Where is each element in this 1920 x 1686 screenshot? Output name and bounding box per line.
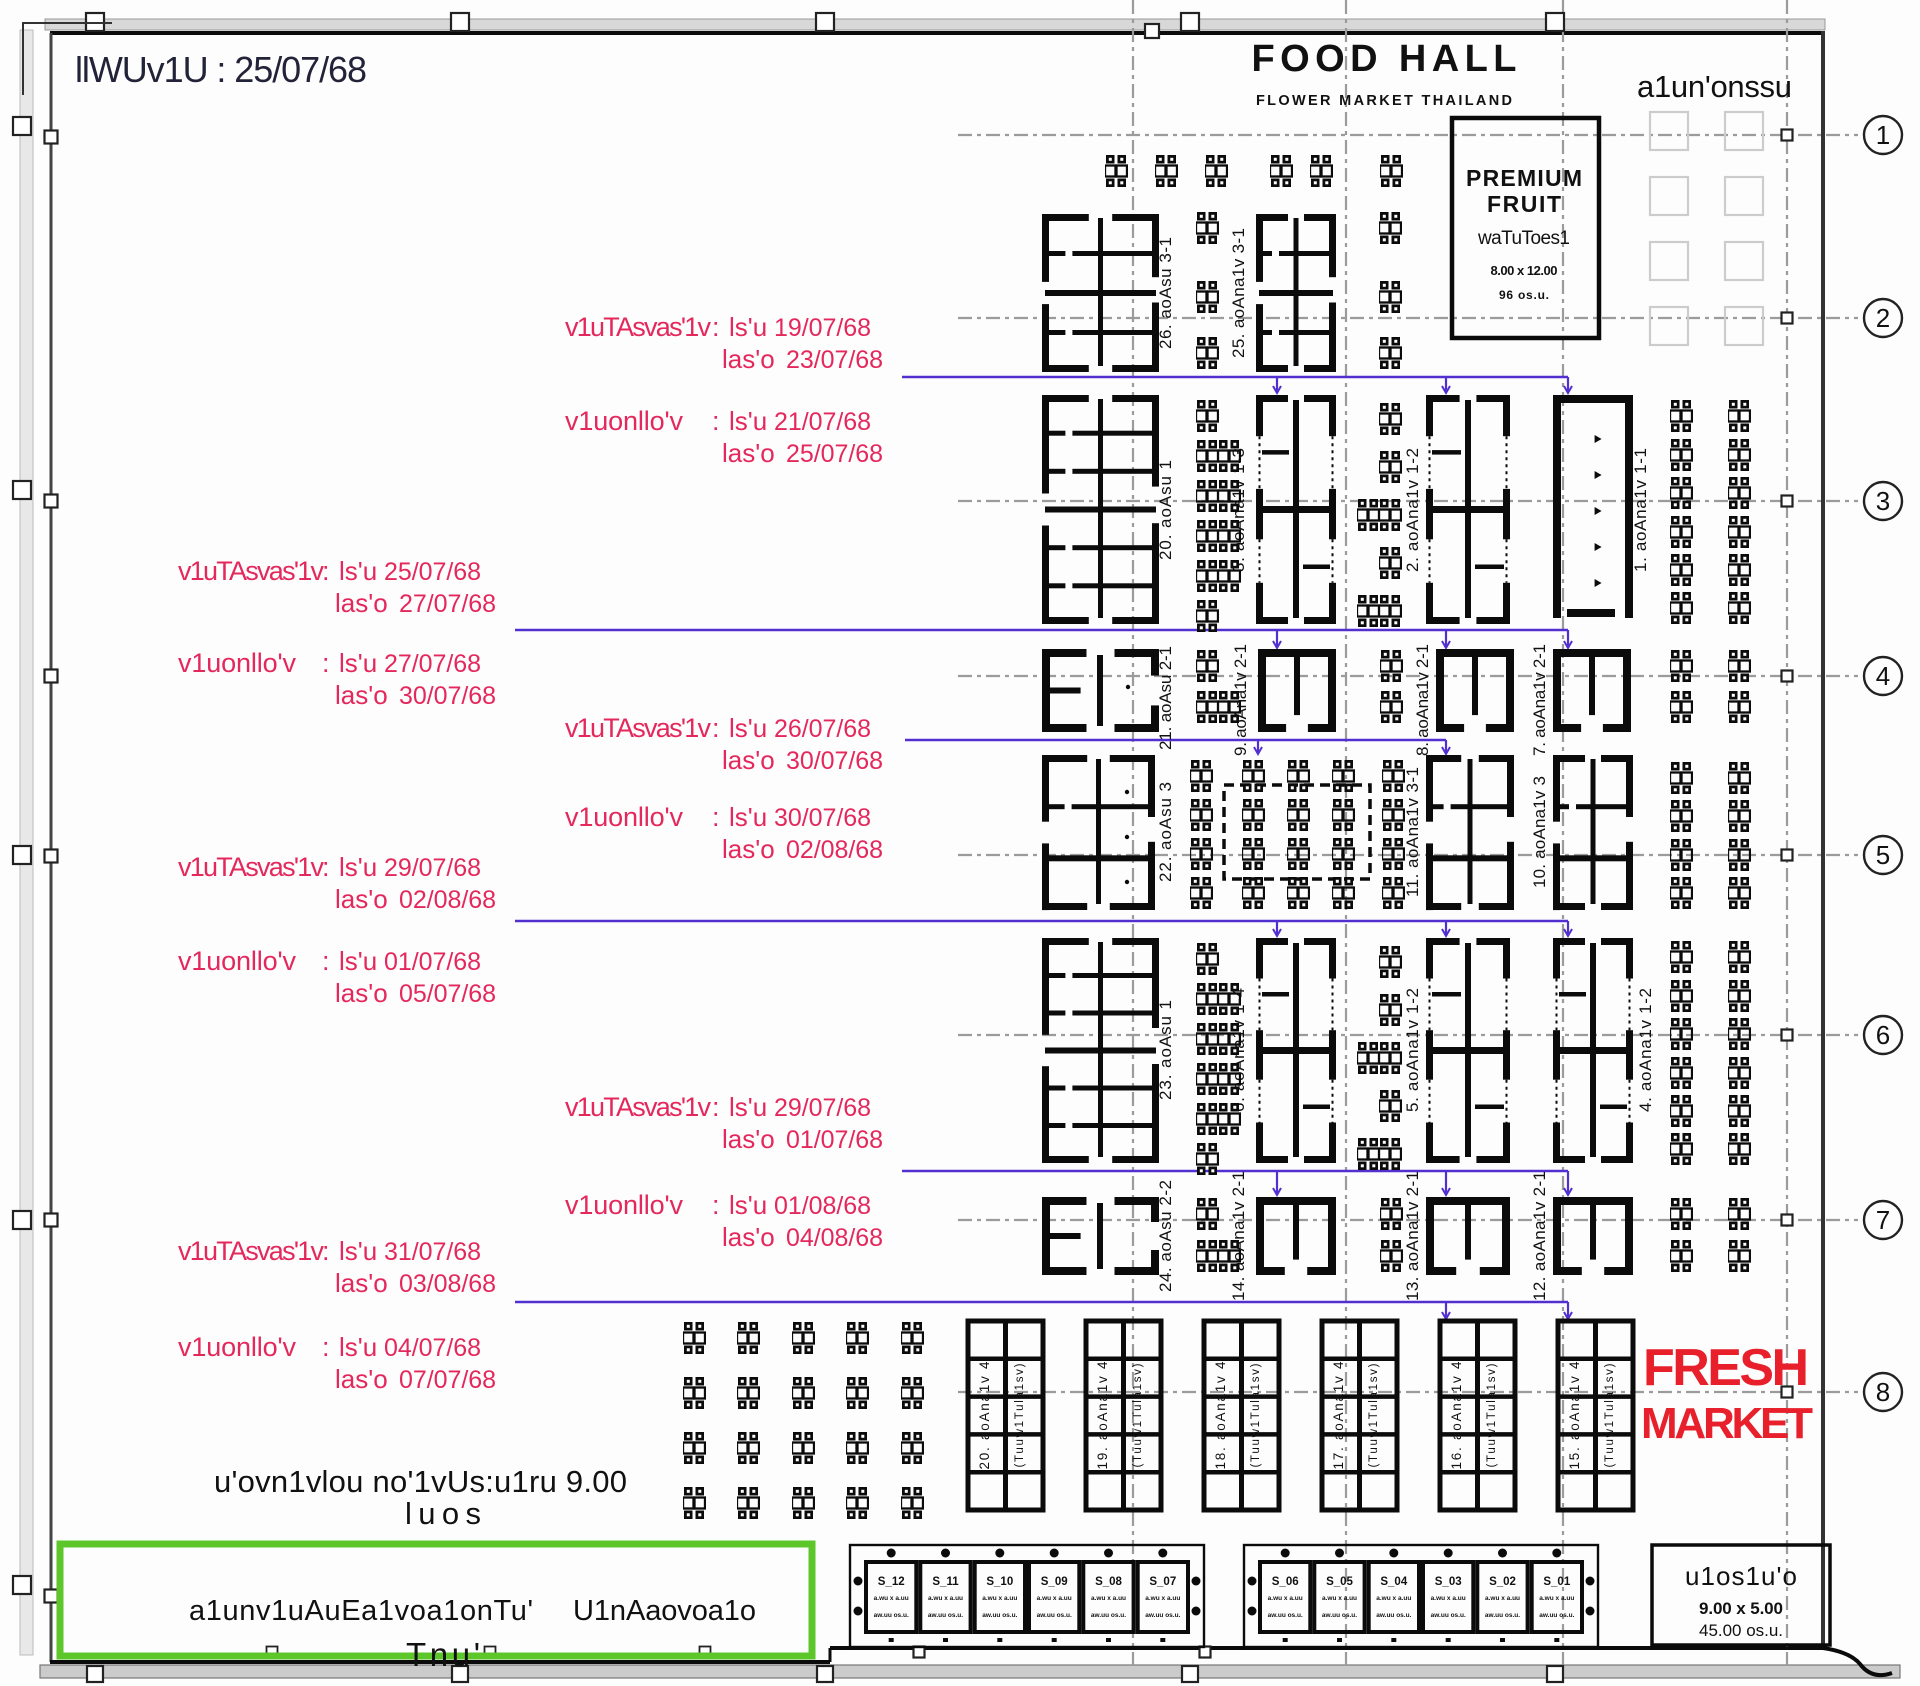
svg-text:2. aoAna1v 1-2: 2. aoAna1v 1-2: [1403, 448, 1422, 572]
svg-text:las'o: las'o: [722, 438, 775, 468]
svg-text::: :: [322, 556, 330, 586]
svg-text:(Tuuw1Tula1sv): (Tuuw1Tula1sv): [1604, 1363, 1616, 1467]
svg-text:S_08: S_08: [1095, 1576, 1122, 1588]
svg-text:15. aoAna1v 4: 15. aoAna1v 4: [1567, 1361, 1582, 1469]
svg-text:llWUv1U : 25/07/68: llWUv1U : 25/07/68: [75, 49, 367, 90]
svg-text:v1uTAsvas'1v: v1uTAsvas'1v: [178, 556, 325, 586]
svg-text:S_11: S_11: [932, 1576, 959, 1588]
svg-text:MARKET: MARKET: [1641, 1399, 1813, 1448]
svg-text:ls'u: ls'u: [339, 852, 377, 882]
svg-text:30/07/68: 30/07/68: [786, 747, 883, 775]
svg-text:v1uTAsvas'1v: v1uTAsvas'1v: [565, 713, 712, 743]
svg-text:v1uonllo'v: v1uonllo'v: [178, 946, 297, 976]
svg-text::: :: [712, 312, 720, 342]
svg-text:las'o: las'o: [335, 1364, 388, 1394]
svg-text:11. aoAna1v 3-1: 11. aoAna1v 3-1: [1403, 767, 1422, 897]
svg-text:waTuToes1: waTuToes1: [1477, 228, 1570, 249]
svg-text:8. aoAna1v 2-1: 8. aoAna1v 2-1: [1413, 644, 1432, 756]
svg-text:a.wu x a.uu: a.wu x a.uu: [1268, 1595, 1303, 1602]
svg-text:PREMIUM: PREMIUM: [1466, 165, 1582, 191]
svg-text:las'o: las'o: [722, 1124, 775, 1154]
svg-text:a1unv1uAuEa1voa1onTu': a1unv1uAuEa1voa1onTu': [189, 1595, 533, 1627]
svg-text:ls'u: ls'u: [729, 312, 767, 342]
svg-text:04/08/68: 04/08/68: [786, 1224, 883, 1252]
svg-text:01/07/68: 01/07/68: [786, 1126, 883, 1154]
svg-text:20. aoAsu 1: 20. aoAsu 1: [1156, 460, 1175, 560]
svg-text:aw.uu os.u.: aw.uu os.u.: [928, 1612, 963, 1619]
svg-text:a.wu x a.uu: a.wu x a.uu: [874, 1595, 909, 1602]
svg-text:19/07/68: 19/07/68: [774, 314, 871, 342]
svg-text:aw.uu os.u.: aw.uu os.u.: [1268, 1612, 1303, 1619]
svg-text:a.wu x a.uu: a.wu x a.uu: [1091, 1595, 1126, 1602]
svg-text:10. aoAna1v 3: 10. aoAna1v 3: [1530, 776, 1549, 888]
svg-text:a.wu x a.uu: a.wu x a.uu: [1539, 1595, 1574, 1602]
svg-text:a.wu x a.uu: a.wu x a.uu: [1485, 1595, 1520, 1602]
svg-text:8.00 x 12.00: 8.00 x 12.00: [1491, 263, 1558, 278]
svg-text:ls'u: ls'u: [339, 1332, 377, 1362]
svg-text:29/07/68: 29/07/68: [774, 1094, 871, 1122]
svg-text:S_12: S_12: [878, 1576, 905, 1588]
svg-text::: :: [712, 1092, 720, 1122]
svg-text:a.wu x a.uu: a.wu x a.uu: [1431, 1595, 1466, 1602]
svg-text:S_10: S_10: [986, 1576, 1013, 1588]
svg-text:ls'u: ls'u: [729, 1092, 767, 1122]
svg-text:Tnu': Tnu': [406, 1636, 480, 1673]
svg-text:las'o: las'o: [335, 978, 388, 1008]
svg-text:1: 1: [1876, 120, 1890, 150]
svg-text:v1uonllo'v: v1uonllo'v: [178, 648, 297, 678]
svg-text:las'o: las'o: [722, 344, 775, 374]
svg-text:02/08/68: 02/08/68: [786, 836, 883, 864]
svg-text:aw.uu os.u.: aw.uu os.u.: [982, 1612, 1017, 1619]
svg-text:las'o: las'o: [335, 1268, 388, 1298]
svg-text:FRESH: FRESH: [1643, 1339, 1809, 1397]
svg-text:26/07/68: 26/07/68: [774, 715, 871, 743]
svg-text:aw.uu os.u.: aw.uu os.u.: [1037, 1612, 1072, 1619]
svg-text:25/07/68: 25/07/68: [786, 440, 883, 468]
svg-text::: :: [322, 1236, 330, 1266]
svg-text:2: 2: [1876, 303, 1890, 333]
svg-text:26. aoAsu 3-1: 26. aoAsu 3-1: [1156, 237, 1175, 349]
svg-text:(Tuuw1Tula1sv): (Tuuw1Tula1sv): [1250, 1363, 1262, 1467]
svg-text:30/07/68: 30/07/68: [399, 682, 496, 710]
svg-text:31/07/68: 31/07/68: [384, 1238, 481, 1266]
svg-text:22. aoAsu 3: 22. aoAsu 3: [1156, 782, 1175, 882]
svg-text:03/08/68: 03/08/68: [399, 1270, 496, 1298]
svg-text:a1un'onssu: a1un'onssu: [1637, 69, 1792, 104]
svg-text:FRUIT: FRUIT: [1487, 191, 1561, 217]
svg-text:las'o: las'o: [335, 588, 388, 618]
svg-text::: :: [322, 946, 330, 976]
svg-text:45.00 os.u.: 45.00 os.u.: [1699, 1621, 1783, 1640]
svg-text:ls'u: ls'u: [339, 946, 377, 976]
svg-text:las'o: las'o: [722, 745, 775, 775]
svg-text:9.00 x 5.00: 9.00 x 5.00: [1699, 1599, 1783, 1618]
svg-text:a.wu x a.uu: a.wu x a.uu: [1037, 1595, 1072, 1602]
svg-text:S_04: S_04: [1380, 1576, 1407, 1588]
svg-text:S_02: S_02: [1489, 1576, 1516, 1588]
svg-text::: :: [712, 1190, 720, 1220]
svg-text:S_07: S_07: [1149, 1576, 1176, 1588]
svg-text:aw.uu os.u.: aw.uu os.u.: [1431, 1612, 1466, 1619]
svg-text:(Tuuw1Tula1sv): (Tuuw1Tula1sv): [1368, 1363, 1380, 1467]
svg-text:27/07/68: 27/07/68: [384, 650, 481, 678]
svg-text:4: 4: [1876, 661, 1890, 691]
svg-text::: :: [322, 852, 330, 882]
svg-text:S_09: S_09: [1041, 1576, 1068, 1588]
svg-text:25. aoAna1v 3-1: 25. aoAna1v 3-1: [1229, 228, 1248, 358]
svg-text:21. aoAsu 2-1: 21. aoAsu 2-1: [1156, 646, 1175, 750]
svg-text:aw.uu os.u.: aw.uu os.u.: [1485, 1612, 1520, 1619]
svg-text:ls'u: ls'u: [729, 406, 767, 436]
svg-text:ls'u: ls'u: [339, 556, 377, 586]
svg-text:19. aoAna1v 4: 19. aoAna1v 4: [1095, 1361, 1110, 1469]
svg-text:v1uonllo'v: v1uonllo'v: [178, 1332, 297, 1362]
svg-text:13. aoAna1v 2-1: 13. aoAna1v 2-1: [1403, 1171, 1422, 1301]
svg-text:20. aoAna1v 4: 20. aoAna1v 4: [977, 1361, 992, 1469]
svg-text:aw.uu os.u.: aw.uu os.u.: [1322, 1612, 1357, 1619]
svg-text::: :: [712, 406, 720, 436]
svg-text::: :: [322, 1332, 330, 1362]
svg-text:ls'u: ls'u: [729, 713, 767, 743]
svg-text:v1uTAsvas'1v: v1uTAsvas'1v: [178, 1236, 325, 1266]
svg-text:30/07/68: 30/07/68: [774, 804, 871, 832]
svg-text:23. aoAsu 1: 23. aoAsu 1: [1156, 1000, 1175, 1100]
svg-text:v1uTAsvas'1v: v1uTAsvas'1v: [565, 312, 712, 342]
svg-text:9. aoAna1v 2-1: 9. aoAna1v 2-1: [1231, 644, 1250, 756]
svg-text:5: 5: [1876, 840, 1890, 870]
svg-text:a.wu x a.uu: a.wu x a.uu: [928, 1595, 963, 1602]
svg-text:27/07/68: 27/07/68: [399, 590, 496, 618]
svg-text:ls'u: ls'u: [339, 1236, 377, 1266]
svg-text:21/07/68: 21/07/68: [774, 408, 871, 436]
svg-text:las'o: las'o: [722, 1222, 775, 1252]
svg-text:aw.uu os.u.: aw.uu os.u.: [1091, 1612, 1126, 1619]
svg-text:v1uonllo'v: v1uonllo'v: [565, 406, 684, 436]
svg-text:a.wu x a.uu: a.wu x a.uu: [1145, 1595, 1180, 1602]
svg-text:7. aoAna1v 2-1: 7. aoAna1v 2-1: [1530, 644, 1549, 756]
svg-text:u'ovn1vlou no'1vUs:u1ru 9.00: u'ovn1vlou no'1vUs:u1ru 9.00: [214, 1464, 627, 1499]
svg-text:las'o: las'o: [335, 884, 388, 914]
svg-text:16. aoAna1v 4: 16. aoAna1v 4: [1449, 1361, 1464, 1469]
svg-text:a.wu x a.uu: a.wu x a.uu: [1376, 1595, 1411, 1602]
svg-text:ls'u: ls'u: [729, 1190, 767, 1220]
svg-text:FOOD HALL: FOOD HALL: [1252, 38, 1517, 80]
svg-text:96 os.u.: 96 os.u.: [1499, 288, 1549, 302]
svg-text:23/07/68: 23/07/68: [786, 346, 883, 374]
svg-text:01/08/68: 01/08/68: [774, 1192, 871, 1220]
svg-text:1. aoAna1v 1-1: 1. aoAna1v 1-1: [1631, 448, 1650, 572]
svg-text:(Tuuw1Tula1sv): (Tuuw1Tula1sv): [1486, 1363, 1498, 1467]
svg-text:aw.uu os.u.: aw.uu os.u.: [1376, 1612, 1411, 1619]
svg-text::: :: [322, 648, 330, 678]
svg-text:S_01: S_01: [1543, 1576, 1570, 1588]
svg-text:aw.uu os.u.: aw.uu os.u.: [1145, 1612, 1180, 1619]
svg-text:4. aoAna1v 1-2: 4. aoAna1v 1-2: [1636, 988, 1655, 1112]
svg-text:U1nAaovoa1o: U1nAaovoa1o: [573, 1595, 756, 1627]
svg-text:7: 7: [1876, 1205, 1890, 1235]
svg-text:01/07/68: 01/07/68: [384, 948, 481, 976]
svg-text:07/07/68: 07/07/68: [399, 1366, 496, 1394]
svg-text:v1uonllo'v: v1uonllo'v: [565, 1190, 684, 1220]
svg-text::: :: [712, 802, 720, 832]
svg-text:5. aoAna1v 1-2: 5. aoAna1v 1-2: [1403, 988, 1422, 1112]
svg-text:24. aoAsu 2-2: 24. aoAsu 2-2: [1156, 1180, 1175, 1292]
svg-text:18. aoAna1v 4: 18. aoAna1v 4: [1213, 1361, 1228, 1469]
svg-text:ls'u: ls'u: [339, 648, 377, 678]
svg-text:04/07/68: 04/07/68: [384, 1334, 481, 1362]
svg-text:ls'u: ls'u: [729, 802, 767, 832]
svg-text:S_06: S_06: [1272, 1576, 1299, 1588]
svg-text:u1os1u'o: u1os1u'o: [1685, 1561, 1797, 1591]
svg-text:05/07/68: 05/07/68: [399, 980, 496, 1008]
svg-text:12. aoAna1v 2-1: 12. aoAna1v 2-1: [1530, 1171, 1549, 1301]
svg-text:a.wu x a.uu: a.wu x a.uu: [982, 1595, 1017, 1602]
svg-text:v1uonllo'v: v1uonllo'v: [565, 802, 684, 832]
svg-text:las'o: las'o: [335, 680, 388, 710]
svg-text:(Tuuw1Tula1sv): (Tuuw1Tula1sv): [1132, 1363, 1144, 1467]
svg-text:29/07/68: 29/07/68: [384, 854, 481, 882]
svg-text:14. aoAna1v 2-1: 14. aoAna1v 2-1: [1229, 1171, 1248, 1301]
svg-text:17. aoAna1v 4: 17. aoAna1v 4: [1331, 1361, 1346, 1469]
svg-text:aw.uu os.u.: aw.uu os.u.: [874, 1612, 909, 1619]
svg-text:S_03: S_03: [1435, 1576, 1462, 1588]
svg-text:las'o: las'o: [722, 834, 775, 864]
svg-text:S_05: S_05: [1326, 1576, 1353, 1588]
svg-text:6: 6: [1876, 1020, 1890, 1050]
svg-text:3: 3: [1876, 486, 1890, 516]
svg-text:25/07/68: 25/07/68: [384, 558, 481, 586]
svg-text:(Tuuw1Tula1sv): (Tuuw1Tula1sv): [1014, 1363, 1026, 1467]
svg-text:a.wu x a.uu: a.wu x a.uu: [1322, 1595, 1357, 1602]
svg-text::: :: [712, 713, 720, 743]
svg-text:v1uTAsvas'1v: v1uTAsvas'1v: [178, 852, 325, 882]
svg-text:aw.uu os.u.: aw.uu os.u.: [1539, 1612, 1574, 1619]
svg-text:02/08/68: 02/08/68: [399, 886, 496, 914]
svg-text:8: 8: [1876, 1377, 1890, 1407]
svg-text:v1uTAsvas'1v: v1uTAsvas'1v: [565, 1092, 712, 1122]
